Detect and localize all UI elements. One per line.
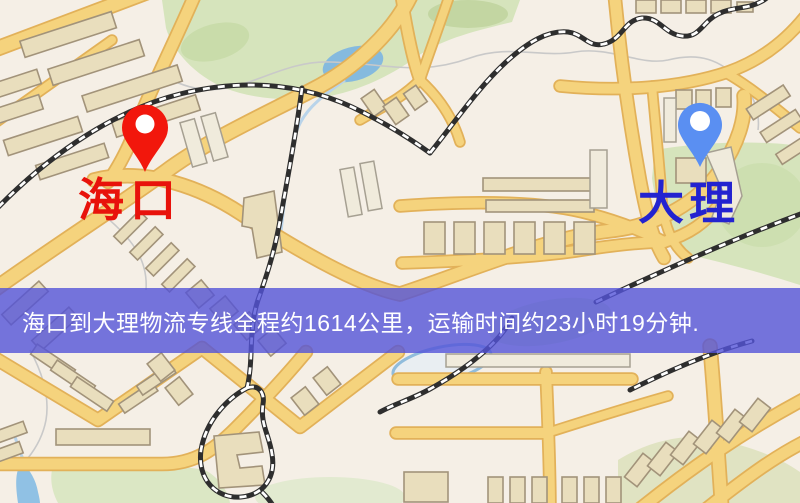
- map-canvas[interactable]: [0, 0, 800, 503]
- destination-city-label: 大理: [638, 181, 740, 227]
- map-screenshot: 海口到大理物流专线全程约1614公里，运输时间约23小时19分钟. 海口 大理: [0, 0, 800, 503]
- route-info-text: 海口到大理物流专线全程约1614公里，运输时间约23小时19分钟.: [22, 304, 699, 338]
- origin-city-label: 海口: [78, 177, 182, 223]
- route-info-banner: 海口到大理物流专线全程约1614公里，运输时间约23小时19分钟.: [0, 288, 800, 353]
